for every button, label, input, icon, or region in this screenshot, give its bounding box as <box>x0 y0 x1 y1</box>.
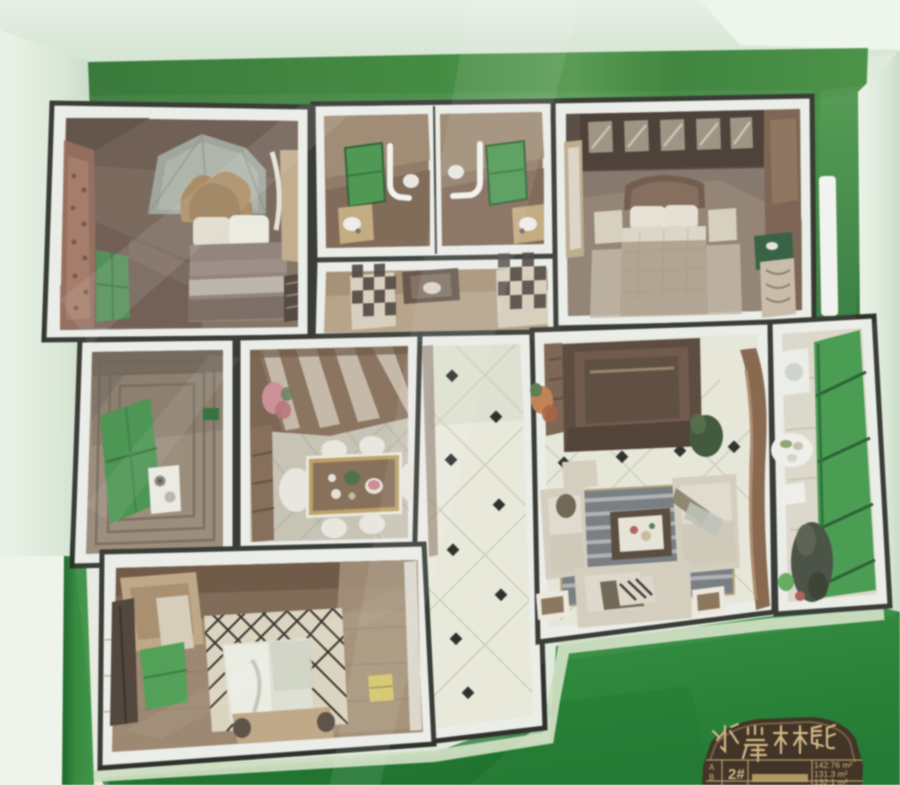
svg-text:B: B <box>709 773 714 782</box>
svg-text:132.1 m²: 132.1 m² <box>814 777 848 785</box>
svg-text:A: A <box>709 763 715 772</box>
svg-text:2#: 2# <box>728 766 745 783</box>
